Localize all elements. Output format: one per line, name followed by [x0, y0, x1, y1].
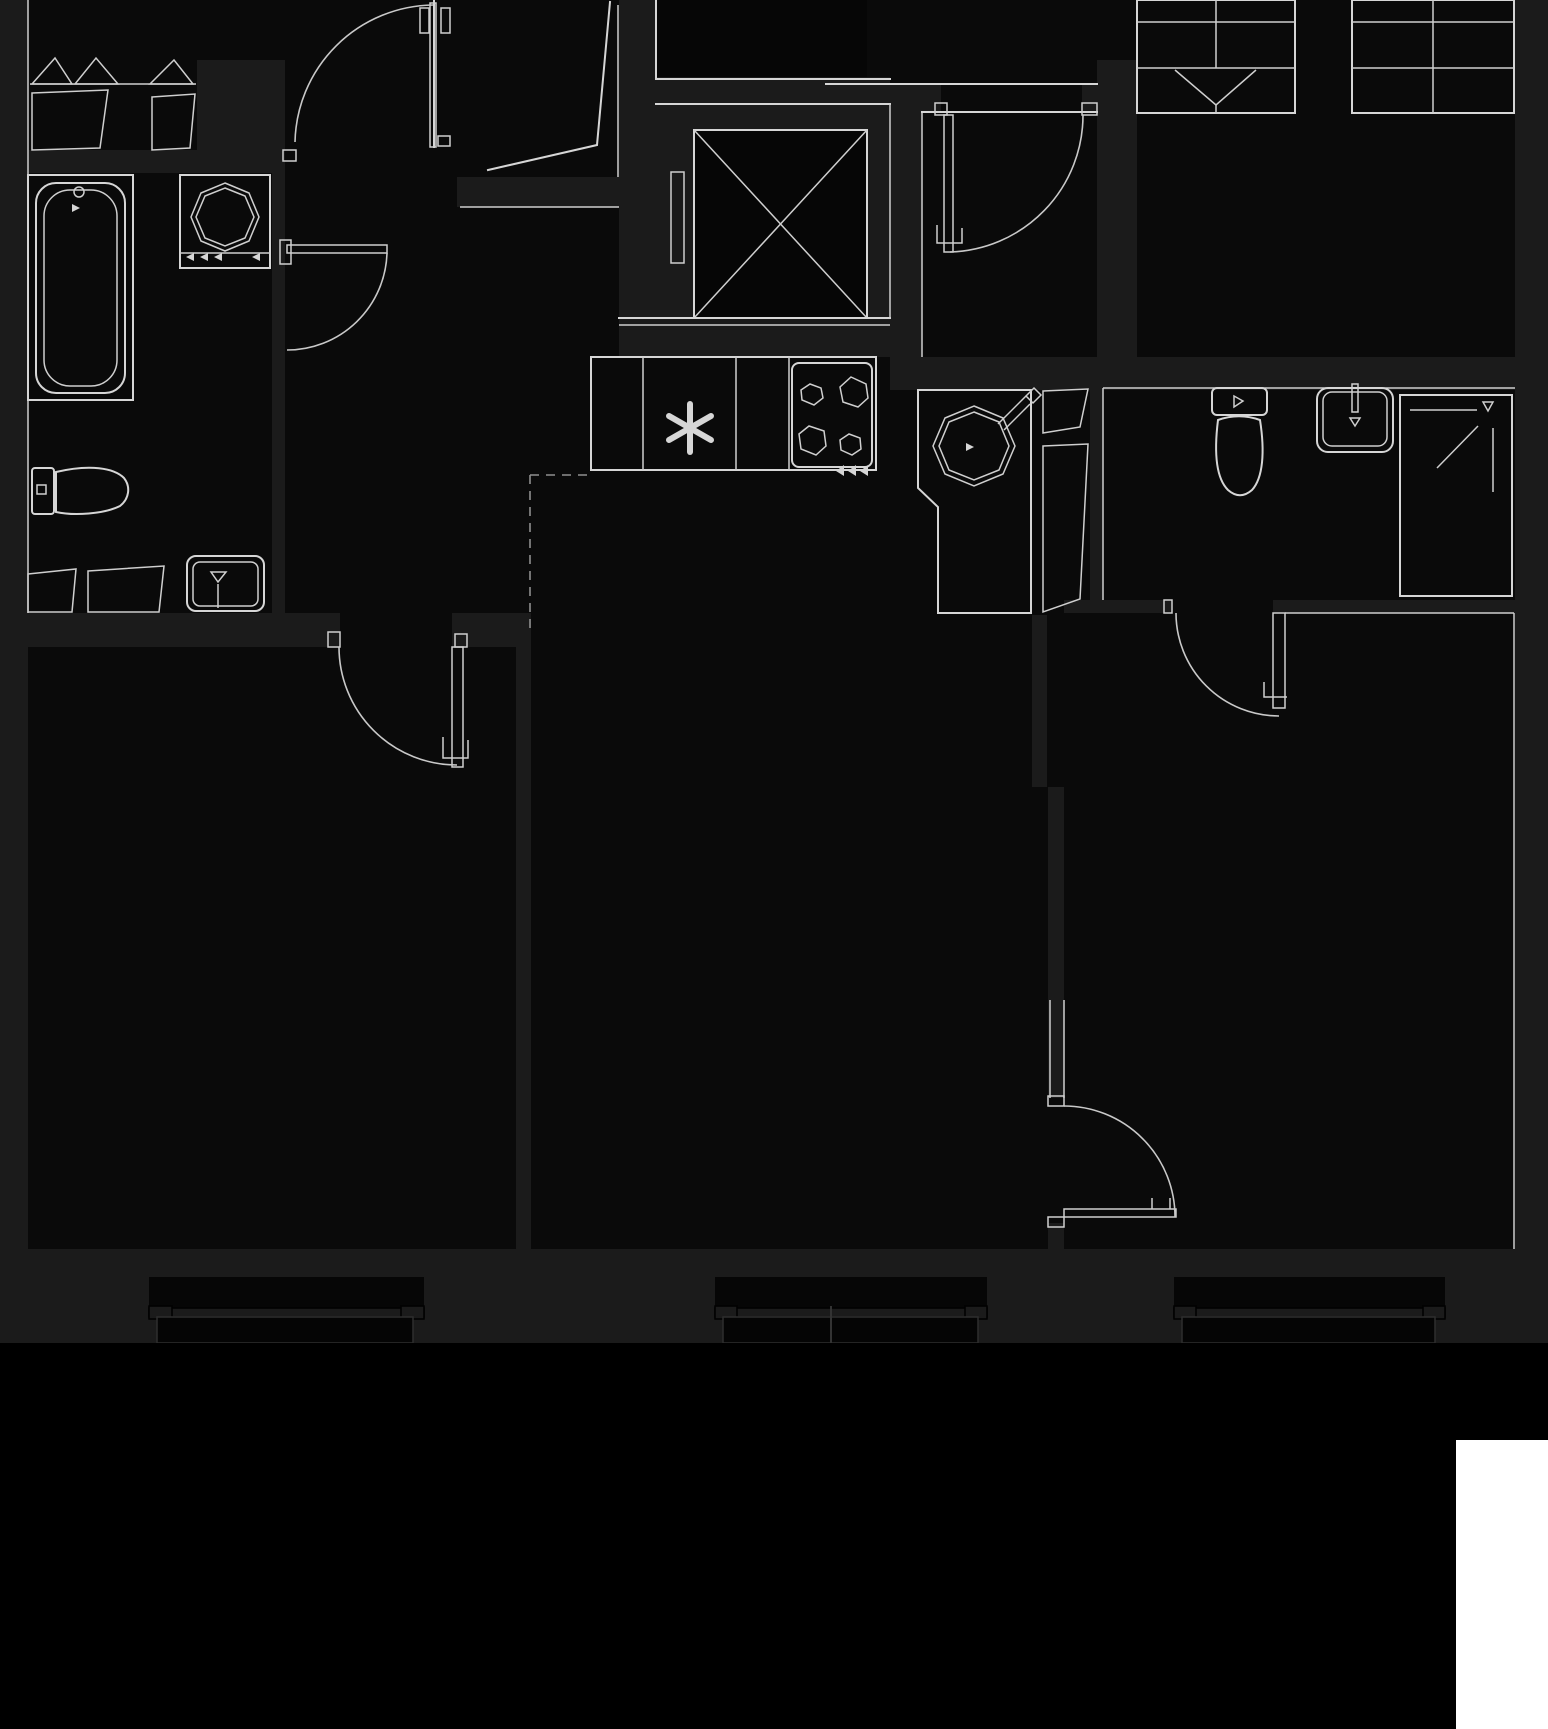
- shaft-top-niche: [656, 0, 867, 77]
- window-sill: [723, 1317, 978, 1343]
- floor-plan-canvas: bathtub washing-machine toilet-1 vanity-…: [0, 0, 1548, 1729]
- window-living-room: [715, 1277, 987, 1345]
- window-glazing: [1174, 1308, 1445, 1317]
- windows: [149, 1277, 1445, 1345]
- window-sill: [1182, 1317, 1435, 1343]
- bottom-right-white-notch: [1456, 1440, 1548, 1729]
- window-glazing: [149, 1308, 424, 1317]
- window-sill: [157, 1317, 413, 1343]
- page-lower-area: [0, 1343, 1548, 1729]
- window-bedroom-left: [149, 1277, 424, 1343]
- window-bedroom-right: [1174, 1277, 1445, 1343]
- window-glazing: [715, 1308, 987, 1317]
- floor-plan-drawing: [0, 0, 1548, 1729]
